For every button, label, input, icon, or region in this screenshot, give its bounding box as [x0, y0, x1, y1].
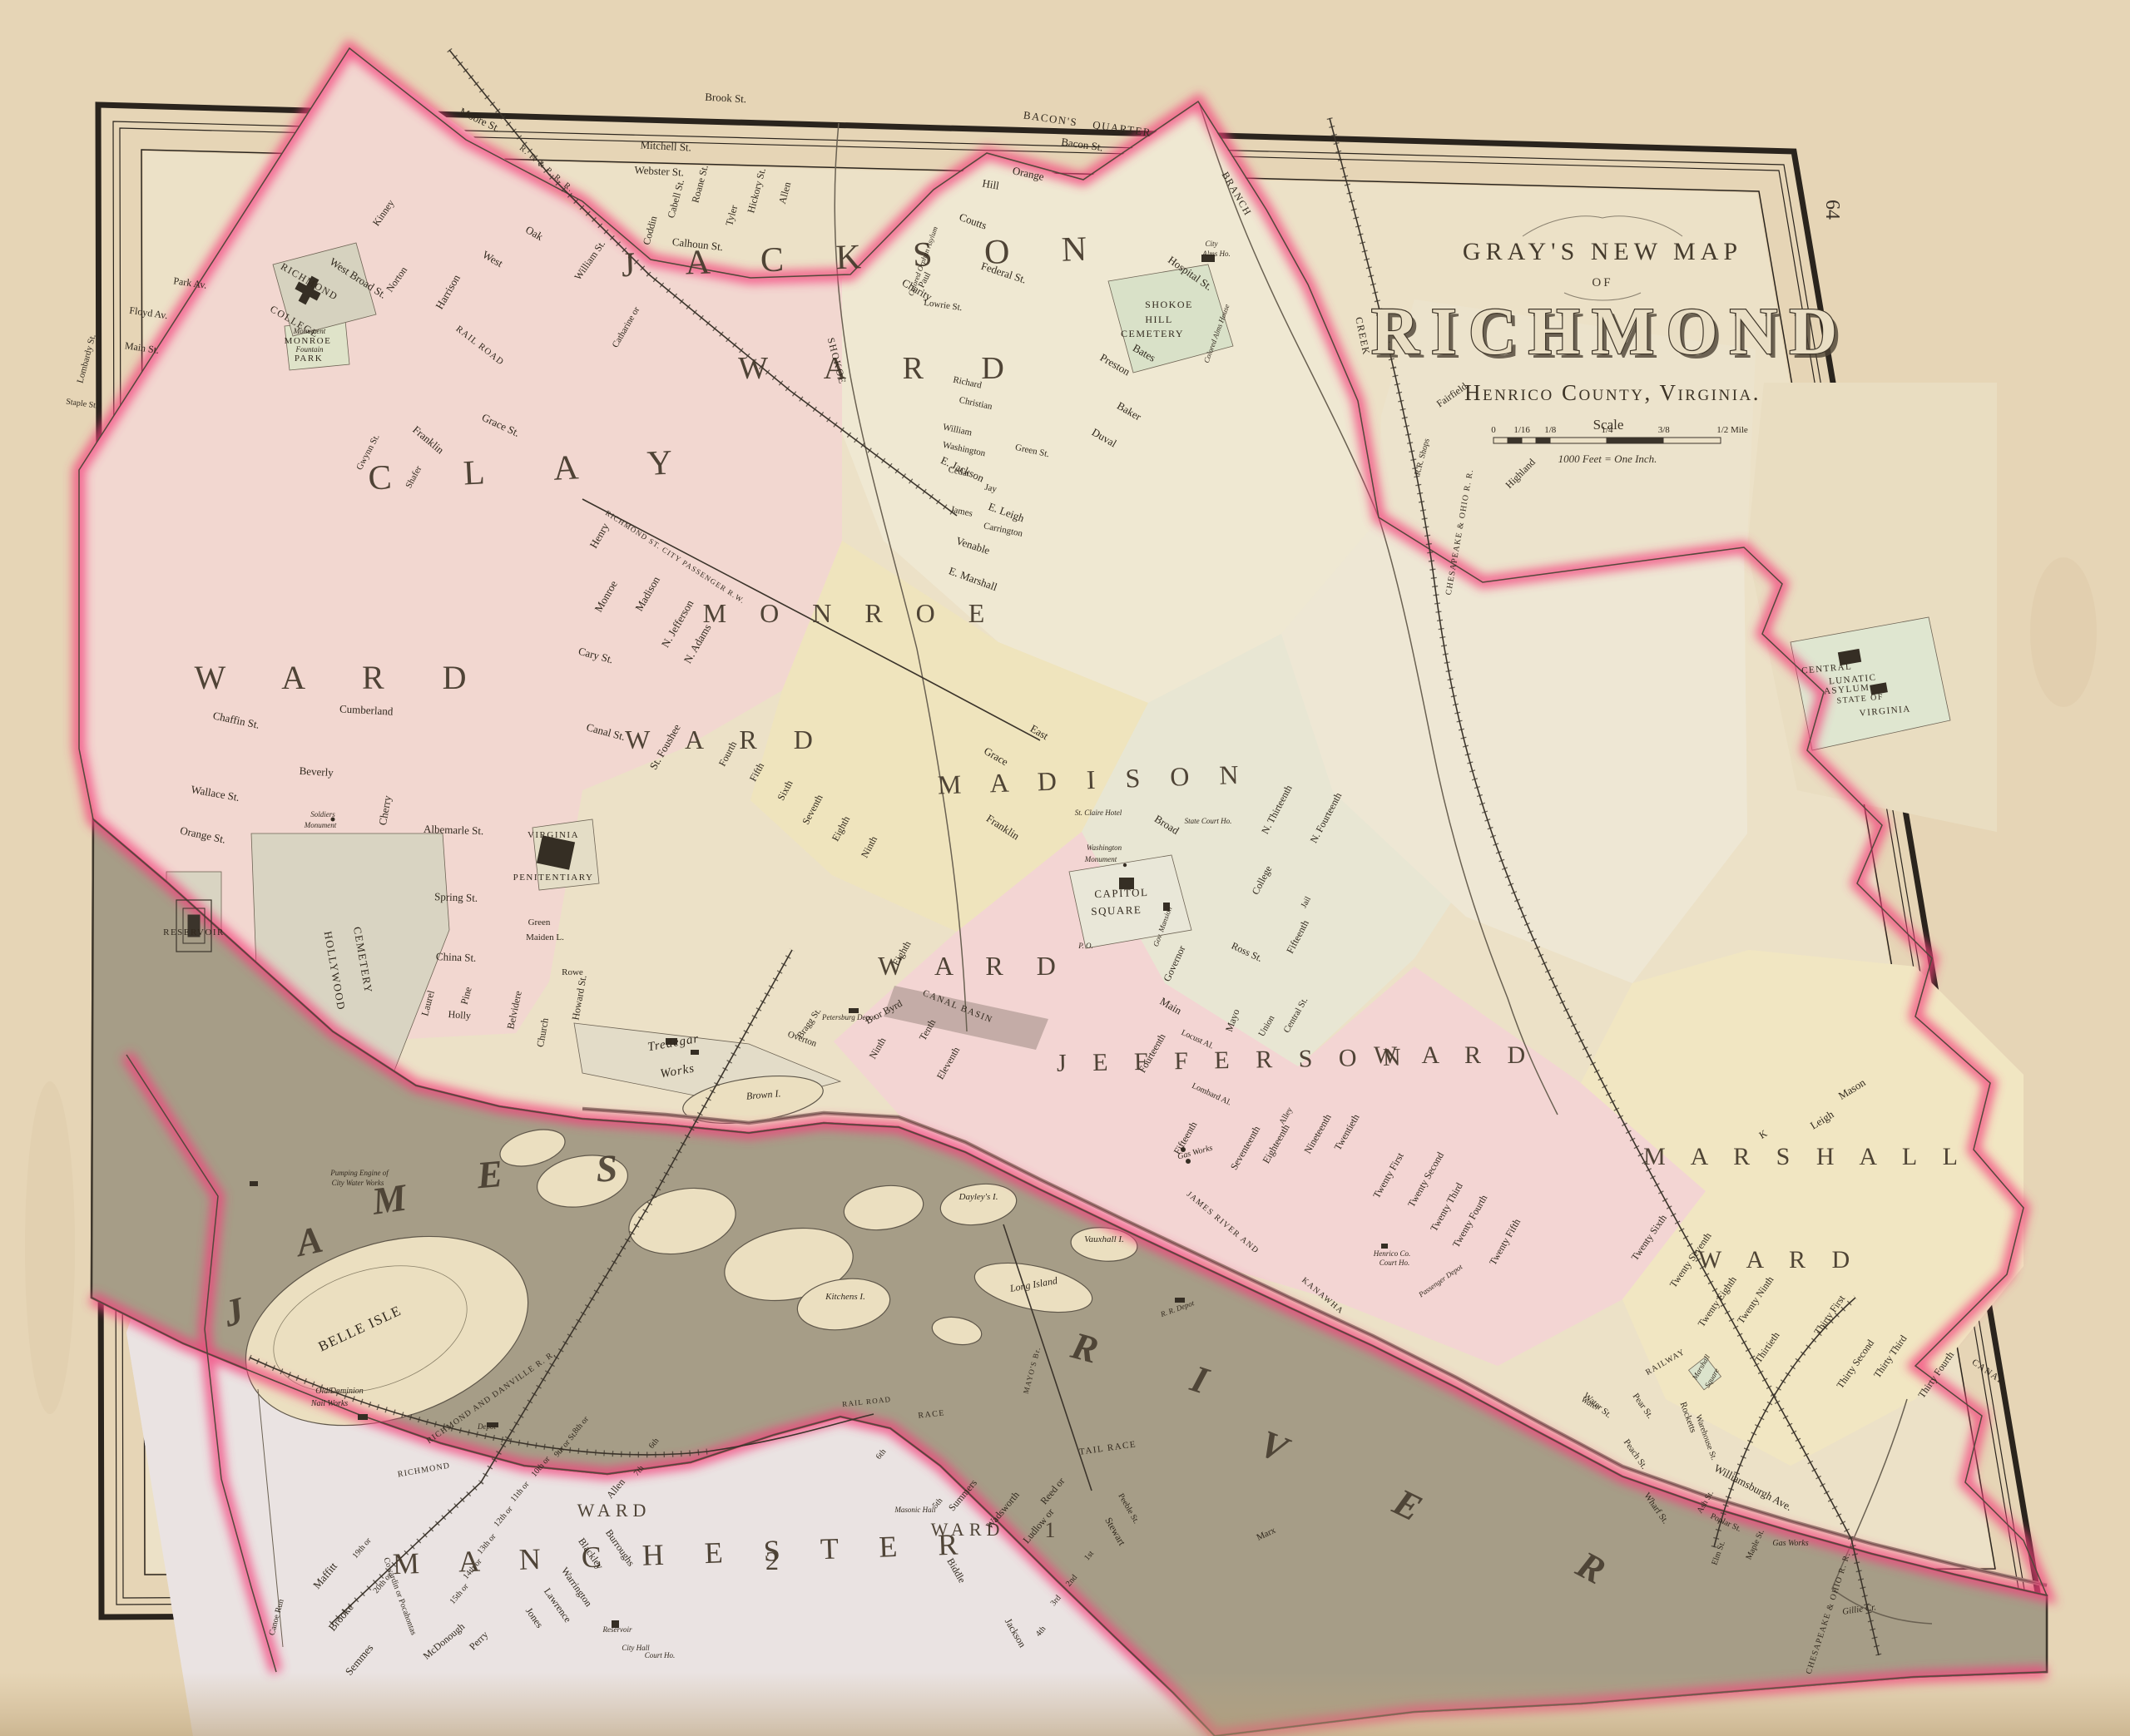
nail-works-building — [358, 1414, 368, 1420]
scale-tick-label: 1/4 — [1601, 425, 1613, 435]
scale-tick-label: 3/8 — [1658, 425, 1671, 435]
landmark-label: Old Dominion — [315, 1387, 364, 1396]
ward-label: M O N R O E — [703, 598, 998, 628]
landmark-label: Depot — [477, 1422, 496, 1431]
ward-label: WARD — [577, 1500, 651, 1521]
river-letter: E — [474, 1152, 504, 1197]
scale-tick-label: 1/2 Mile — [1716, 425, 1748, 435]
street-label: China St. — [436, 950, 477, 964]
landmark-label: Masonic Hall — [894, 1506, 936, 1514]
landmark-label: Court Ho. — [645, 1651, 676, 1659]
landmark-label: PENITENTIARY — [513, 873, 594, 883]
landmark-label: Reservoir — [602, 1625, 632, 1634]
henrico-courthouse-building — [1381, 1244, 1388, 1249]
ward-label: W A R D — [1698, 1246, 1860, 1274]
map-kicker-of: OF — [1592, 276, 1612, 289]
landmark-label: Kitchens I. — [825, 1292, 865, 1302]
street-label: Beverly — [299, 764, 334, 779]
landmark-label: Monument — [304, 821, 337, 829]
landmark-label: P. O. — [1077, 942, 1093, 950]
street-label: Webster St. — [634, 163, 684, 178]
ward-label: W A R D — [194, 659, 491, 696]
landmark-label: HILL — [1145, 314, 1172, 325]
page-number: 64 — [1821, 200, 1843, 220]
street-label: Mitchell St. — [640, 138, 691, 153]
washington-monument-mark — [1123, 863, 1127, 867]
street-label: Holly — [448, 1008, 471, 1021]
map-subtitle: Henrico County, Virginia. — [1464, 380, 1761, 405]
map-canvas: GRAY'S NEW MAP OF RICHMOND RICHMOND Henr… — [0, 0, 2130, 1736]
ward-label: 2 — [765, 1546, 779, 1575]
landmark-label: St. Claire Hotel — [1075, 809, 1122, 817]
landmark-label: Washington — [1087, 843, 1122, 852]
landmark-label: CEMETERY — [1121, 328, 1184, 339]
landmark-label: PARK — [295, 354, 323, 364]
landmark-label: RESERVOIR — [163, 927, 225, 937]
scale-bar — [1493, 438, 1721, 443]
landmark-label: Nail Works — [310, 1399, 348, 1408]
scale-tick-label: 1/8 — [1544, 425, 1557, 435]
scale-tick-label: 1/16 — [1513, 425, 1530, 435]
landmark-label: VIRGINIA — [528, 830, 579, 840]
page-edge-shadow — [0, 1672, 2130, 1736]
landmark-label: Soldiers — [310, 810, 335, 819]
landmark-label: Gas Works — [1772, 1539, 1808, 1548]
landmark-label: Henrico Co. — [1373, 1249, 1411, 1258]
landmark-label: Fountain — [295, 345, 324, 354]
landmark-label: CAPITOL — [1094, 886, 1149, 900]
street-label: Rowe — [562, 967, 583, 977]
landmark-label: SQUARE — [1091, 903, 1142, 917]
pumping-engine-building — [250, 1181, 258, 1186]
ward-label: W A R D — [1374, 1041, 1535, 1069]
street-label: Brook St. — [705, 91, 747, 106]
river-letter: S — [595, 1146, 618, 1189]
landmark-label: Alms Ho. — [1201, 250, 1231, 258]
scale-note: 1000 Feet = One Inch. — [1558, 453, 1657, 465]
landmark-label: Pumping Engine of — [329, 1169, 389, 1177]
street-label: Albemarle St. — [424, 823, 484, 838]
landmark-label: Vauxhall I. — [1084, 1234, 1124, 1244]
scale-tick-label: 0 — [1491, 425, 1496, 435]
street-label: Green — [528, 917, 551, 927]
ward-label: W A R D — [738, 351, 1029, 386]
landmark-label: Monument — [1084, 855, 1117, 863]
landmark-label: City — [1206, 240, 1218, 248]
landmark-label: State Court Ho. — [1185, 817, 1232, 825]
map-title: RICHMOND — [1371, 295, 1849, 368]
landmark-label: Dayley's I. — [958, 1192, 998, 1202]
map-kicker: GRAY'S NEW MAP — [1463, 238, 1742, 265]
landmark-label: SHOKOE — [1145, 299, 1193, 310]
landmark-label: Court Ho. — [1380, 1259, 1410, 1267]
atlas-page: GRAY'S NEW MAP OF RICHMOND RICHMOND Henr… — [0, 0, 2130, 1736]
street-label: Spring St. — [434, 890, 478, 904]
ward-label: M A R S H A L L — [1643, 1143, 1968, 1170]
landmark-label: City Water Works — [332, 1179, 384, 1187]
landmark-label: Monument — [293, 327, 326, 335]
street-label: Maiden L. — [526, 932, 564, 942]
